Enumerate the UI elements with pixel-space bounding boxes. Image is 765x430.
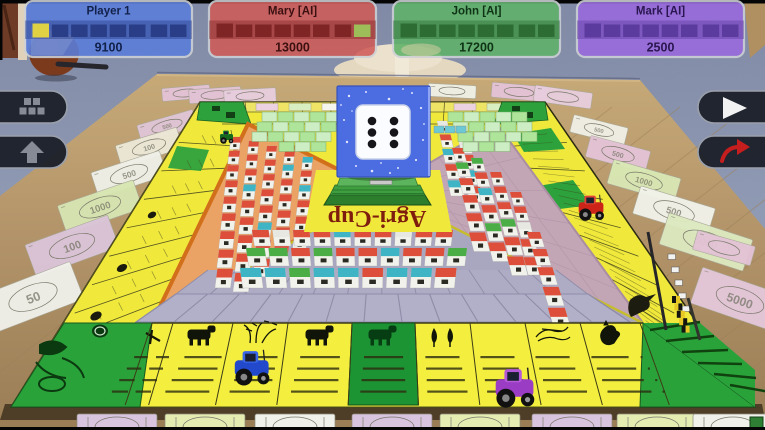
svg-text:John [AI]: John [AI]	[452, 6, 502, 18]
svg-text:Mark [AI]: Mark [AI]	[636, 6, 685, 18]
svg-text:2500: 2500	[647, 41, 675, 55]
svg-text:17200: 17200	[459, 41, 494, 55]
svg-text:13000: 13000	[275, 41, 310, 55]
svg-text:Mary [AI]: Mary [AI]	[268, 6, 317, 18]
svg-text:Player 1: Player 1	[86, 6, 131, 18]
svg-text:9100: 9100	[95, 41, 123, 55]
svg-text:Agri-Cup: Agri-Cup	[328, 205, 427, 231]
